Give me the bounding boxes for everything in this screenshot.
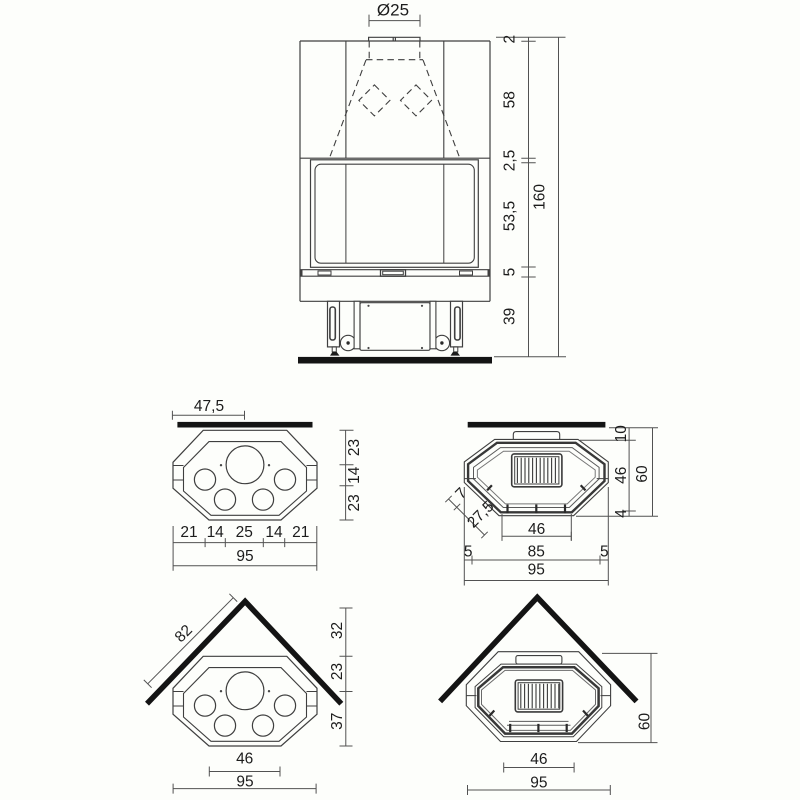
svg-text:2,5: 2,5	[502, 150, 519, 172]
svg-text:14: 14	[346, 466, 363, 484]
svg-text:37: 37	[329, 713, 346, 730]
svg-text:2: 2	[502, 35, 519, 44]
svg-text:160: 160	[532, 184, 549, 210]
svg-text:60: 60	[637, 713, 654, 731]
svg-text:14: 14	[265, 524, 283, 541]
svg-text:95: 95	[528, 562, 545, 579]
svg-text:82: 82	[172, 622, 196, 646]
svg-text:21: 21	[180, 524, 197, 541]
svg-text:14: 14	[207, 524, 225, 541]
svg-text:47,5: 47,5	[194, 398, 224, 415]
svg-text:4: 4	[613, 509, 630, 518]
svg-text:46: 46	[236, 751, 253, 768]
svg-text:46: 46	[530, 751, 547, 768]
svg-text:53,5: 53,5	[502, 201, 519, 231]
svg-text:46: 46	[613, 467, 630, 484]
svg-text:25: 25	[236, 524, 253, 541]
svg-text:23: 23	[346, 494, 363, 511]
svg-text:60: 60	[634, 465, 651, 483]
svg-text:5: 5	[464, 544, 473, 561]
svg-text:95: 95	[236, 548, 253, 565]
svg-text:85: 85	[528, 544, 545, 561]
svg-text:5: 5	[502, 268, 519, 277]
svg-text:23: 23	[329, 663, 346, 680]
svg-text:5: 5	[600, 544, 609, 561]
svg-text:32: 32	[329, 622, 346, 639]
svg-text:46: 46	[528, 521, 545, 538]
svg-text:21: 21	[292, 524, 309, 541]
svg-text:58: 58	[502, 91, 519, 108]
svg-text:39: 39	[502, 308, 519, 325]
svg-text:7: 7	[452, 485, 470, 503]
svg-text:95: 95	[530, 775, 547, 792]
svg-text:Ø25: Ø25	[377, 1, 409, 20]
svg-text:23: 23	[346, 439, 363, 456]
svg-text:10: 10	[613, 425, 630, 443]
svg-text:95: 95	[236, 774, 253, 791]
